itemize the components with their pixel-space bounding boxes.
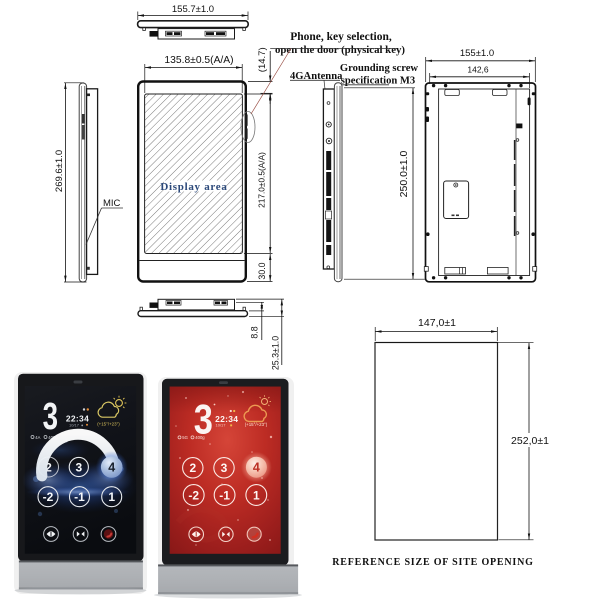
svg-text:1: 1 xyxy=(108,490,115,504)
svg-text:2: 2 xyxy=(189,461,196,475)
svg-text:269.6±1.0: 269.6±1.0 xyxy=(54,150,65,192)
svg-text:MIC: MIC xyxy=(103,198,121,209)
svg-text:open the door (physical key): open the door (physical key) xyxy=(275,44,405,56)
svg-text:155.7±1.0: 155.7±1.0 xyxy=(172,4,214,15)
svg-text:147,0±1: 147,0±1 xyxy=(418,317,456,329)
svg-text:-2: -2 xyxy=(43,490,54,504)
svg-text:30.0: 30.0 xyxy=(257,262,267,279)
svg-text:Grounding screw: Grounding screw xyxy=(340,63,419,74)
svg-text:10/17: 10/17 xyxy=(69,422,80,427)
svg-text:252,0±1: 252,0±1 xyxy=(511,435,549,447)
svg-text:217.0±0.5(A/A): 217.0±0.5(A/A) xyxy=(256,152,266,208)
svg-text:3: 3 xyxy=(75,460,82,474)
svg-text:250.0±1.0: 250.0±1.0 xyxy=(398,151,410,198)
svg-text:400g: 400g xyxy=(195,435,205,440)
svg-text:Phone, key selection,: Phone, key selection, xyxy=(290,31,392,43)
svg-text:REFERENCE SIZE OF SITE OPENING: REFERENCE SIZE OF SITE OPENING xyxy=(332,557,533,568)
svg-text:155±1.0: 155±1.0 xyxy=(460,48,494,59)
svg-text:3: 3 xyxy=(221,461,228,475)
svg-text:25.3±1.0: 25.3±1.0 xyxy=(271,336,281,370)
svg-text:1: 1 xyxy=(253,488,260,502)
svg-text:135.8±0.5(A/A): 135.8±0.5(A/A) xyxy=(164,55,233,66)
svg-text:(14.7): (14.7) xyxy=(257,47,268,72)
svg-text:4: 4 xyxy=(253,461,260,475)
svg-text:142,6: 142,6 xyxy=(467,65,489,75)
svg-text:4: 4 xyxy=(108,461,115,475)
svg-text:-2: -2 xyxy=(188,488,199,502)
svg-text:Display area: Display area xyxy=(160,181,227,193)
svg-text:10/17: 10/17 xyxy=(216,423,227,428)
svg-text:(+15°/+23°): (+15°/+23°) xyxy=(97,422,120,427)
svg-text:-1: -1 xyxy=(74,490,85,504)
svg-text:3: 3 xyxy=(43,396,58,438)
svg-text:4A: 4A xyxy=(35,435,40,440)
svg-text:8.8: 8.8 xyxy=(250,326,260,338)
svg-text:5G: 5G xyxy=(182,435,188,440)
svg-text:(+15°/+23°): (+15°/+23°) xyxy=(245,422,268,427)
svg-text:-1: -1 xyxy=(219,488,230,502)
